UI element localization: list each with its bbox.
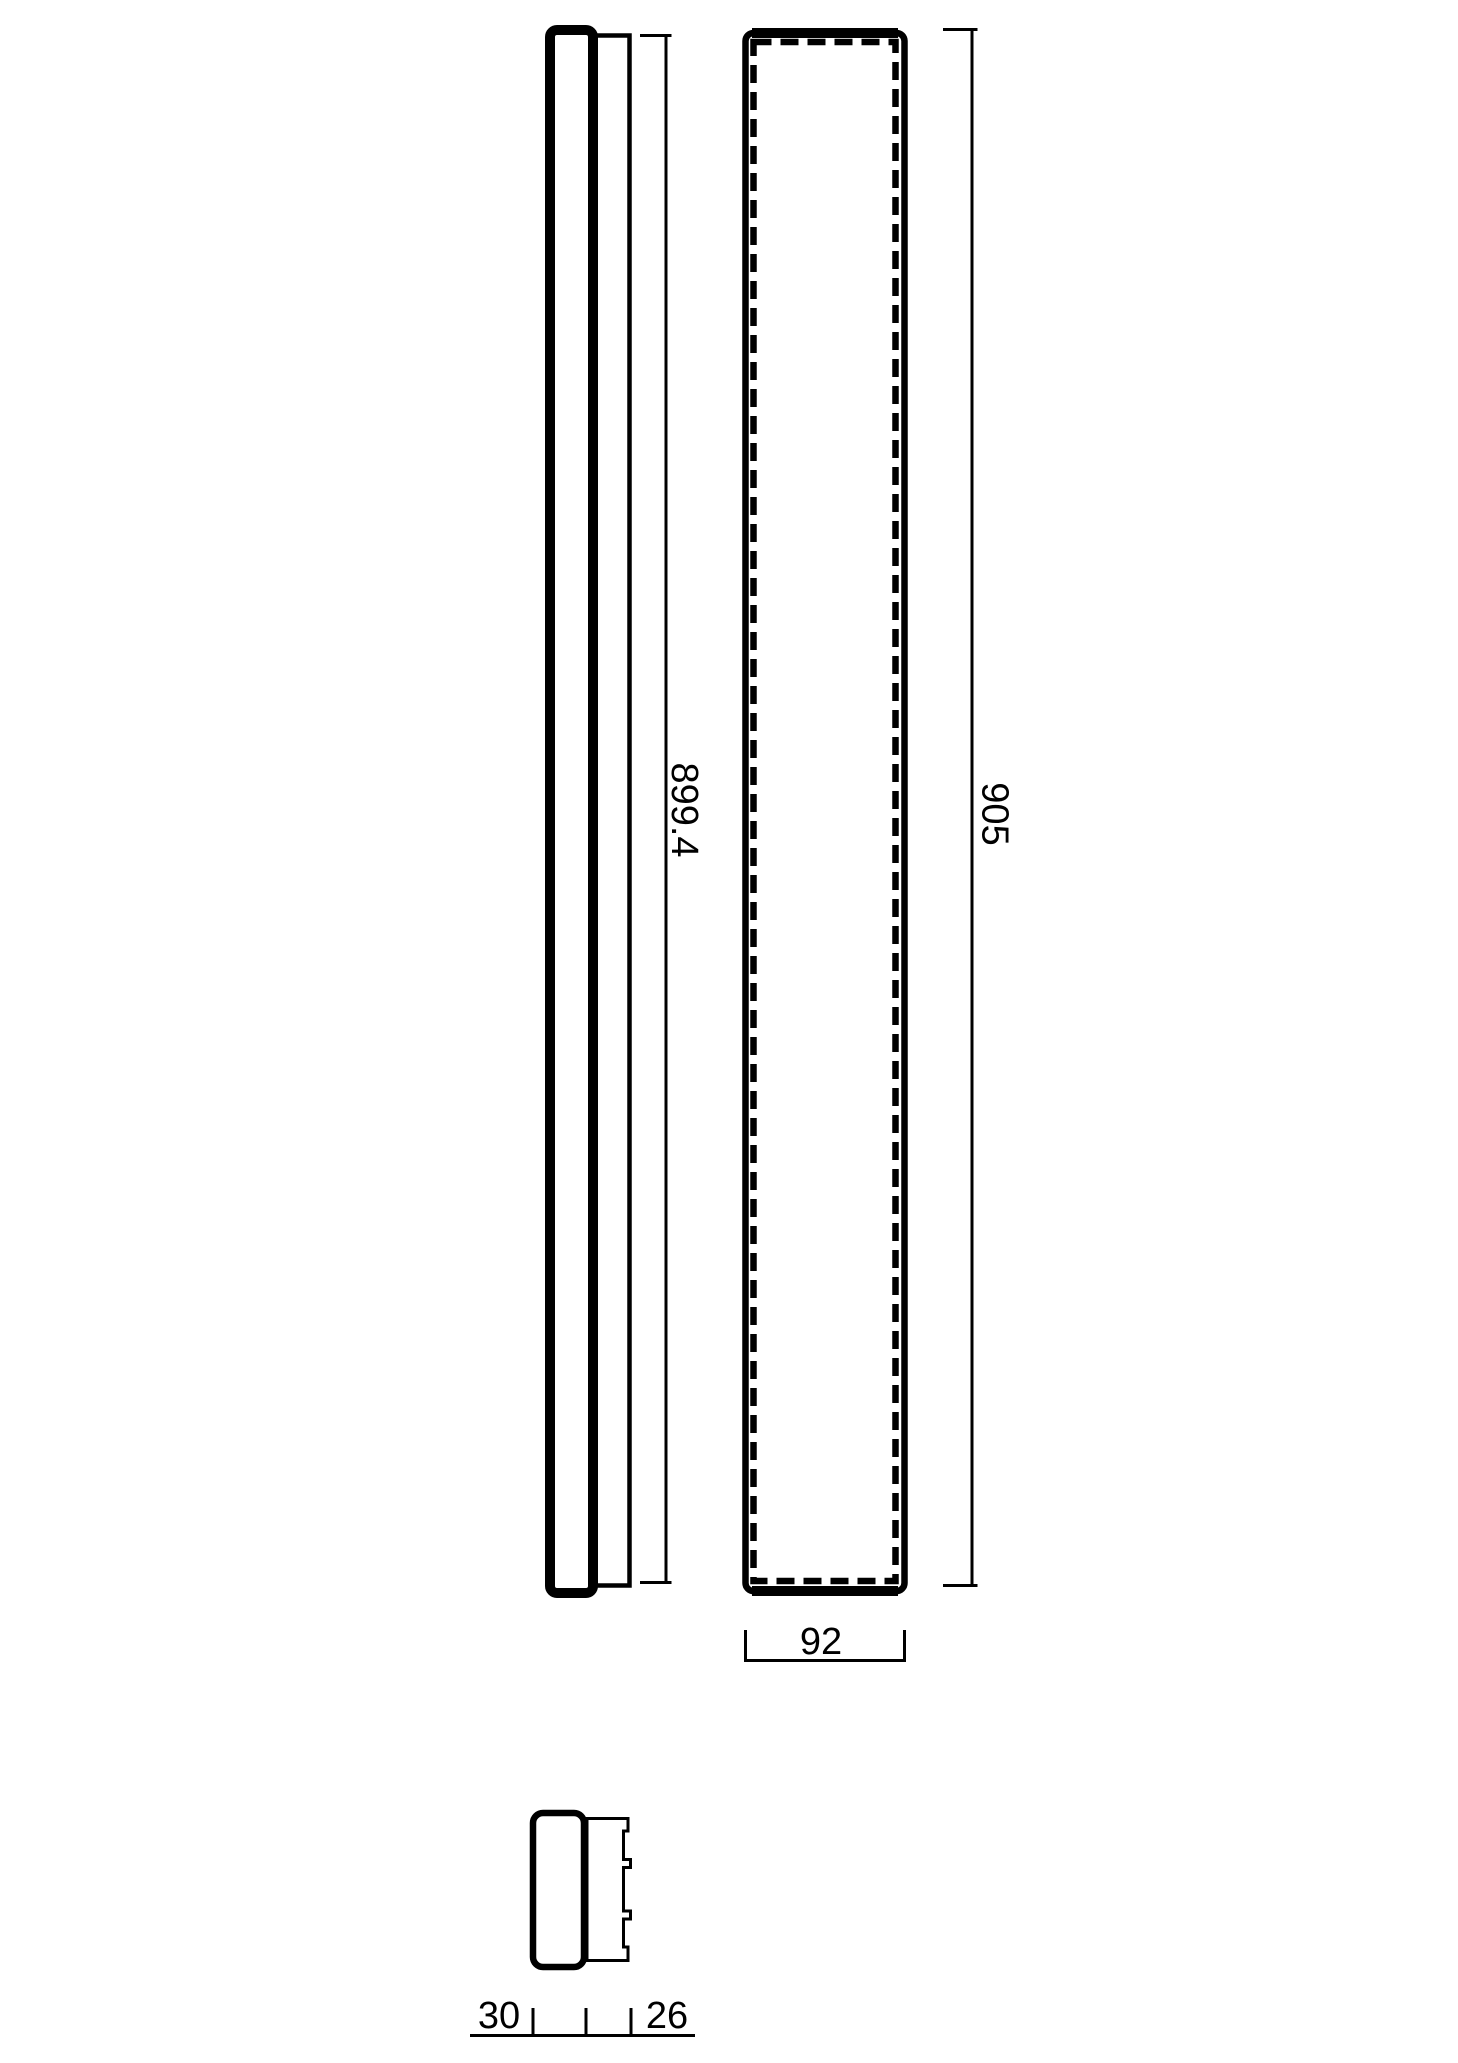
dimension-label-side-height: 899.4 — [663, 762, 705, 857]
dimension-label-front-height: 905 — [974, 782, 1016, 845]
drawing-sheet: 899.4 905 92 — [0, 0, 1458, 2063]
dimension-label-front-width: 92 — [800, 1621, 842, 1663]
side-view — [550, 30, 630, 1593]
side-view-endcap-outline — [550, 30, 593, 1593]
dimension-side-height: 899.4 — [640, 36, 705, 1583]
front-view — [746, 33, 905, 1591]
section-view-endcap-outline — [533, 1813, 584, 1967]
section-view-mount-profile-outline — [587, 1819, 631, 1961]
dimension-label-depth-mount: 26 — [646, 1995, 688, 2037]
section-view — [533, 1813, 631, 1967]
dimension-front-height: 905 — [943, 30, 1016, 1586]
technical-drawing: 899.4 905 92 — [0, 0, 1458, 2063]
dimension-front-width: 92 — [744, 1621, 906, 1663]
dimension-depth-chain: 30 26 — [470, 1995, 695, 2037]
front-view-outline — [746, 33, 905, 1591]
dimension-label-depth-cap: 30 — [478, 1995, 520, 2037]
